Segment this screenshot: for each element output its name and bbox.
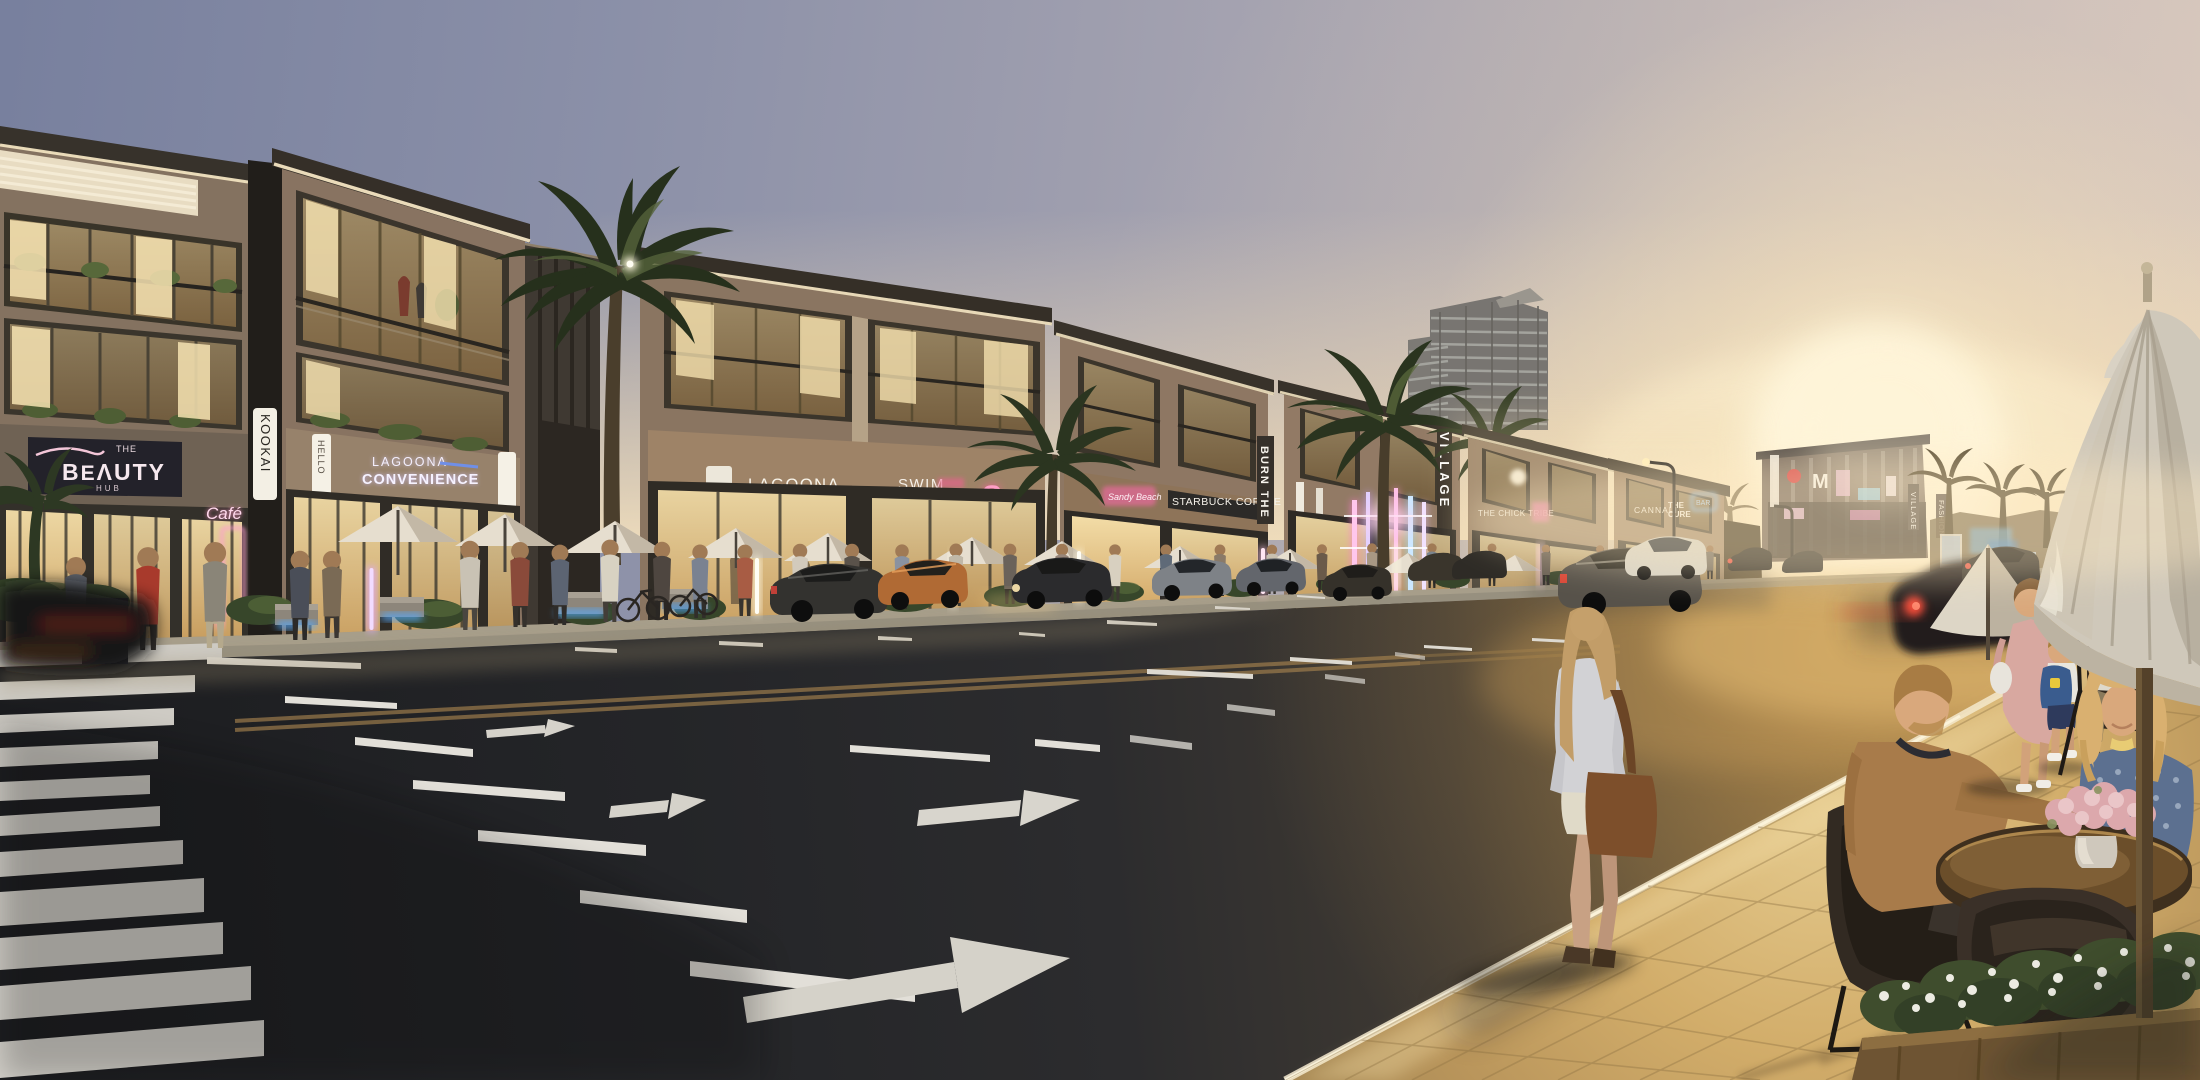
svg-text:Café: Café bbox=[206, 504, 242, 523]
svg-text:BURN THE: BURN THE bbox=[1258, 446, 1270, 519]
svg-text:HUB: HUB bbox=[96, 484, 122, 493]
svg-text:KOOKAI: KOOKAI bbox=[258, 414, 273, 473]
svg-text:THE: THE bbox=[116, 444, 137, 454]
svg-text:LAGOONA: LAGOONA bbox=[372, 455, 448, 469]
svg-text:Sandy Beach: Sandy Beach bbox=[1108, 492, 1162, 502]
svg-text:BEΛUTY: BEΛUTY bbox=[62, 459, 166, 485]
svg-text:CONVENIENCE: CONVENIENCE bbox=[362, 472, 479, 488]
svg-text:HELLO: HELLO bbox=[316, 440, 326, 475]
